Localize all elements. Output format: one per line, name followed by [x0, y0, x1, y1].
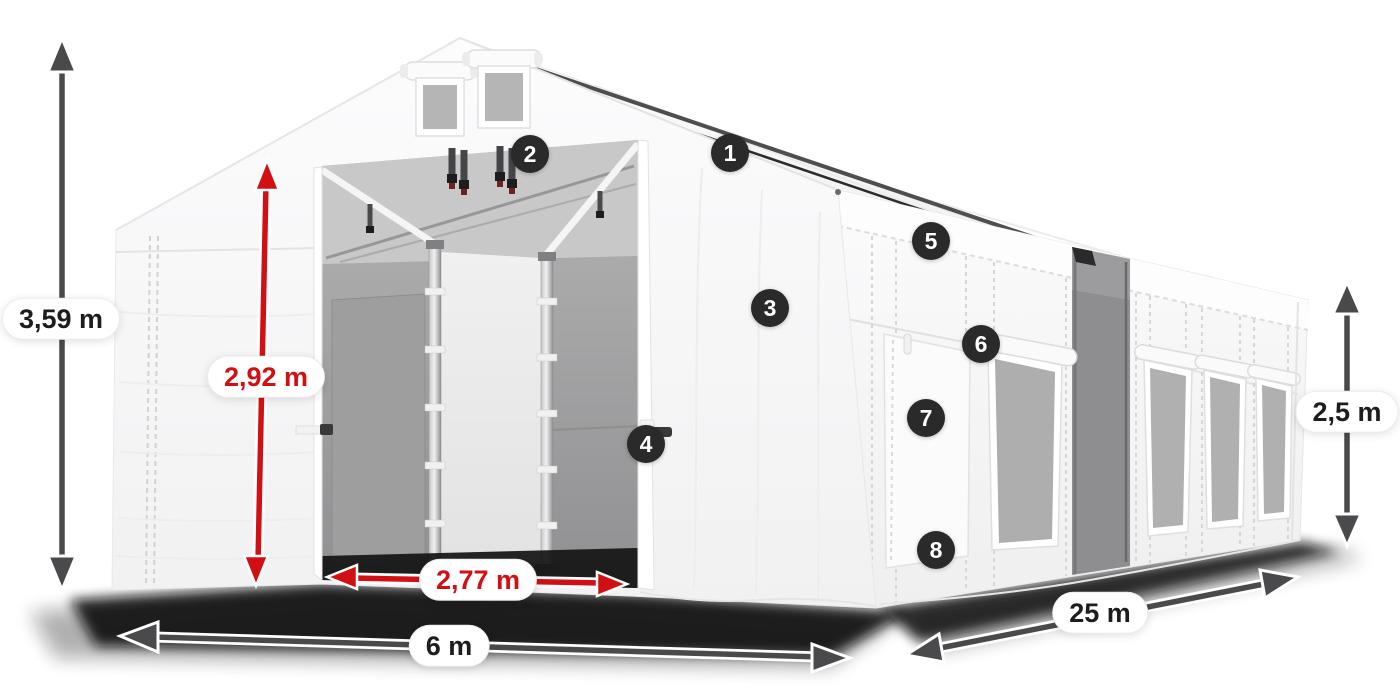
callout-badge-6: 6 [962, 325, 1000, 363]
side-window-near [984, 341, 1068, 550]
product-dimension-figure: 3,59 m 2,92 m 2,77 m 6 m 25 m 2,5 m 1 2 … [0, 0, 1400, 700]
side-wall [838, 190, 1308, 608]
dimension-label-length: 25 m [1053, 593, 1147, 633]
callout-badge-1: 1 [711, 134, 749, 172]
tent-illustration-canvas [0, 0, 1400, 700]
interior-pole-right [535, 252, 559, 573]
callout-badge-5: 5 [912, 222, 950, 260]
side-window-2 [1202, 362, 1248, 529]
dimension-label-entrance-width: 2,77 m [420, 560, 536, 600]
callout-badge-2: 2 [511, 135, 549, 173]
callout-badge-8: 8 [917, 531, 955, 569]
dimension-label-total-height: 3,59 m [3, 299, 119, 339]
interior-through-opening [441, 252, 541, 572]
callout-badge-3: 3 [751, 289, 789, 327]
callout-badge-7: 7 [907, 399, 945, 437]
dimension-label-gable-width: 6 m [410, 626, 489, 666]
interior-pole-left [423, 240, 447, 575]
side-window-1 [1142, 352, 1194, 536]
side-window-3 [1254, 371, 1294, 521]
door-strap-left [296, 426, 322, 434]
side-door-opening [1072, 247, 1130, 575]
door-handle-left-icon [320, 424, 333, 435]
dimension-label-entrance-height: 2,92 m [208, 357, 324, 397]
dimension-label-side-height: 2,5 m [1296, 392, 1397, 432]
front-entrance-opening [322, 140, 638, 588]
callout-badge-4: 4 [627, 425, 665, 463]
